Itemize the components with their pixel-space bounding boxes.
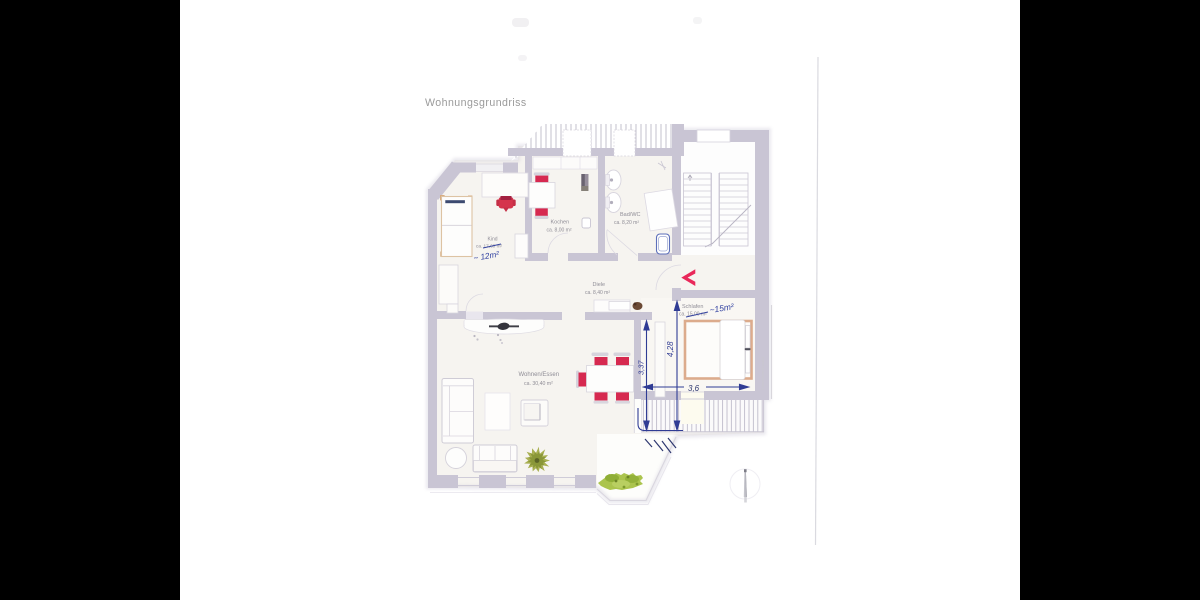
svg-text:Bad/WC: Bad/WC: [620, 212, 641, 218]
svg-text:4,28: 4,28: [666, 341, 675, 357]
svg-text:Kind: Kind: [488, 237, 498, 243]
svg-text:Kochen: Kochen: [551, 220, 570, 226]
svg-text:Diele: Diele: [593, 282, 606, 288]
svg-text:Wohnen/Essen: Wohnen/Essen: [519, 372, 560, 378]
svg-text:ca. 8,40 m²: ca. 8,40 m²: [585, 290, 610, 296]
svg-text:© ImmobilienScout24: © ImmobilienScout24: [761, 357, 765, 390]
svg-text:ca. 8,00 m²: ca. 8,00 m²: [547, 228, 572, 234]
svg-text:ca. 8,20 m²: ca. 8,20 m²: [614, 220, 639, 226]
svg-text:Wohnungsgrundriss: Wohnungsgrundriss: [425, 97, 527, 109]
svg-text:ca. 30,40 m²: ca. 30,40 m²: [524, 381, 553, 387]
svg-text:ca. 15,00 m²: ca. 15,00 m²: [679, 312, 707, 318]
svg-text:Schlafen: Schlafen: [682, 304, 703, 310]
svg-text:3,6: 3,6: [688, 384, 700, 393]
svg-text:3,37: 3,37: [637, 360, 646, 375]
